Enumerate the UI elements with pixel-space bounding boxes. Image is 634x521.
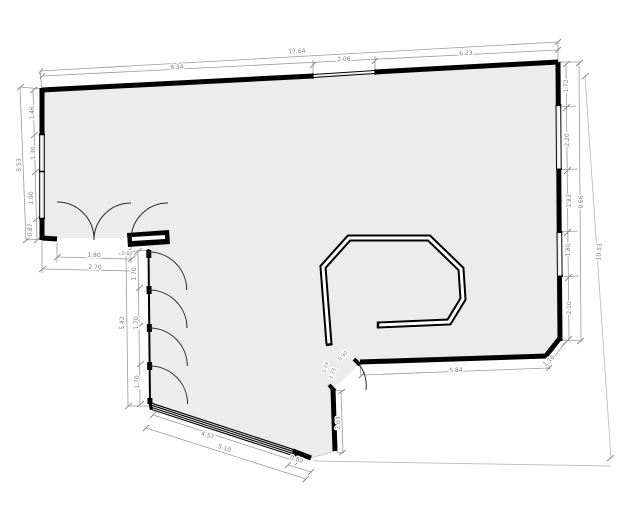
- dim-notch-height: 2.03: [335, 416, 342, 430]
- dim-right-s4: 1.80: [565, 243, 572, 257]
- dim-left-s3: 1.90: [28, 191, 35, 205]
- dim-entry-door: 1.80: [87, 252, 101, 259]
- dim-col-d2: 1.70: [133, 316, 140, 330]
- dim-interior-bottom: 5.84: [449, 367, 463, 374]
- dim-right-s3: 1.83: [566, 194, 573, 208]
- dim-entry-stub: 0.60: [121, 251, 132, 257]
- dim-col-total: 5.42: [119, 316, 126, 330]
- dim-top-left: 9.34: [170, 64, 184, 72]
- dim-left-s1: 1.46: [29, 106, 36, 120]
- dim-top-total: 17.64: [288, 48, 306, 56]
- entry-pilaster: [127, 230, 170, 247]
- wall-entry-stub: [42, 238, 57, 239]
- floor-plan-page: 17.64 9.34 2.06 6.23 5.53 1.46 1.30 1.90…: [0, 0, 634, 521]
- dim-col-d3: 1.70: [134, 375, 141, 389]
- floor-plan-drawing: 17.64 9.34 2.06 6.23 5.53 1.46 1.30 1.90…: [0, 0, 634, 521]
- dim-site-total: 10.53: [595, 243, 603, 261]
- dim-top-right: 6.23: [459, 50, 473, 58]
- wall-right-s5: [560, 277, 561, 341]
- dim-right-s5: 2.10: [566, 301, 573, 315]
- dim-entry-total: 2.70: [88, 264, 102, 271]
- dim-right-s2: 2.20: [564, 133, 571, 147]
- dim-col-d1: 1.70: [131, 267, 138, 281]
- dim-right-total: 9.66: [578, 195, 585, 209]
- dim-left-s4: 0.87: [27, 223, 34, 237]
- dim-top-opening: 2.06: [337, 56, 351, 64]
- dim-left-total: 5.53: [16, 158, 23, 172]
- dim-right-s1: 1.72: [563, 79, 570, 93]
- dim-left-s2: 1.30: [30, 146, 37, 160]
